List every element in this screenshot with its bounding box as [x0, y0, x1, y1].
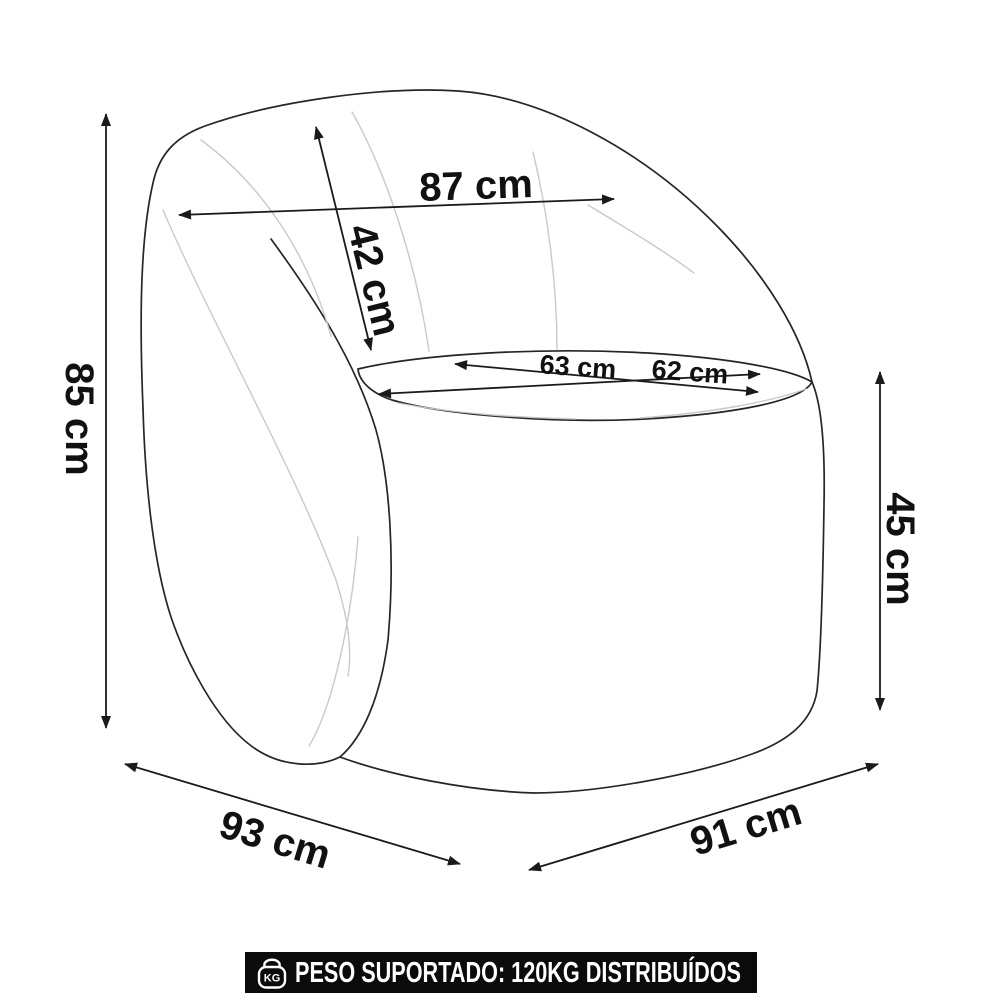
seam-line-seat-right [640, 389, 806, 418]
seam-line-back-left [201, 140, 331, 336]
dimension-label-87: 87 cm [419, 162, 534, 210]
kg-weight-icon: KG [254, 954, 290, 991]
dimension-label-45: 45 cm [878, 492, 922, 605]
weight-capacity-text-wrap: PESO SUPORTADO: 120KG DISTRIBUÍDOS [295, 955, 747, 991]
base-outline [340, 382, 824, 793]
dimension-label-62: 62 cm [651, 354, 729, 389]
weight-capacity-banner: KG PESO SUPORTADO: 120KG DISTRIBUÍDOS [245, 952, 757, 993]
armrest-outer-outline [143, 408, 340, 764]
dimension-label-91: 91 cm [685, 789, 806, 864]
seam-line-seat-left [398, 403, 575, 419]
seam-line-armrest [163, 210, 350, 676]
dimension-arrow-87 [179, 199, 614, 215]
product-dimension-diagram: 87 cm 42 cm 85 cm 63 cm 62 cm 45 cm 93 c… [0, 0, 1000, 1000]
seam-line-armrest-lower [309, 537, 358, 746]
dimension-arrows [106, 114, 880, 870]
kg-icon-label: KG [264, 973, 281, 985]
dimension-labels: 87 cm 42 cm 85 cm 63 cm 62 cm 45 cm 93 c… [57, 162, 922, 878]
seam-line-back-right [533, 152, 557, 349]
seam-line-back-shoulder [588, 205, 694, 273]
dimension-label-93: 93 cm [214, 802, 335, 877]
weight-capacity-text: PESO SUPORTADO: 120KG DISTRIBUÍDOS [295, 955, 741, 989]
dimension-label-63: 63 cm [539, 349, 617, 384]
dimension-label-42: 42 cm [339, 220, 409, 341]
armchair-line-drawing: 87 cm 42 cm 85 cm 63 cm 62 cm 45 cm 93 c… [0, 0, 1000, 1000]
dimension-label-85: 85 cm [57, 362, 101, 475]
